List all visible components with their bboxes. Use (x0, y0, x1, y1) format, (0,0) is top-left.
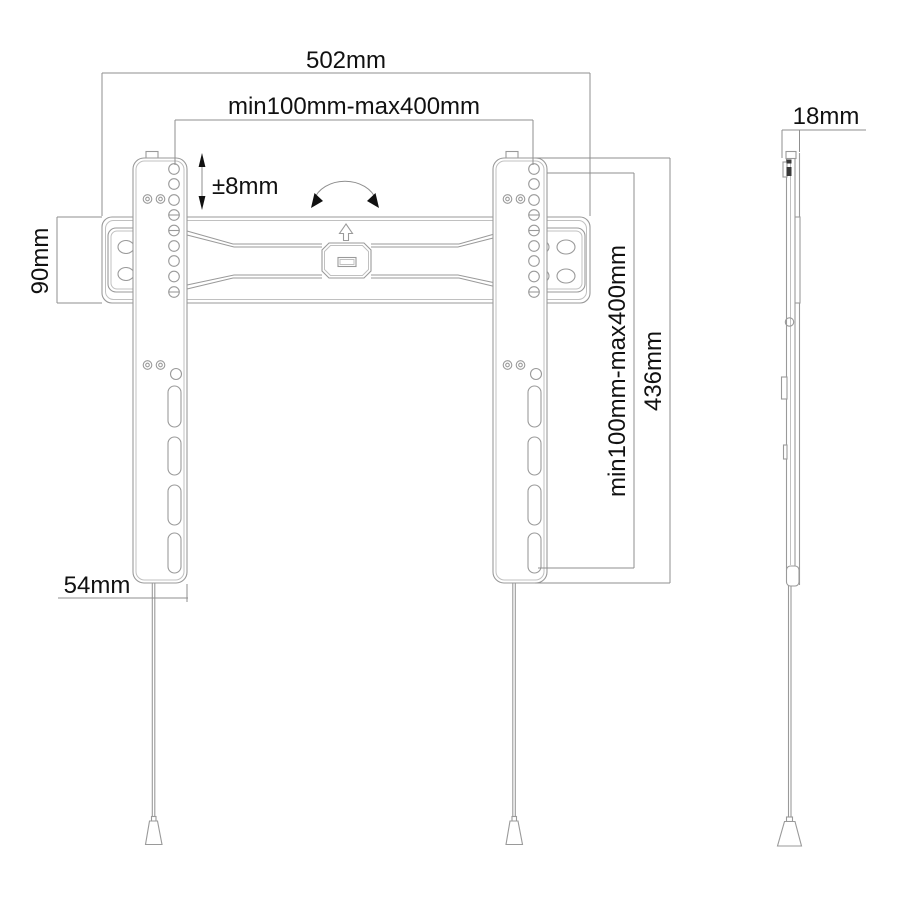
pull-cord (146, 583, 163, 845)
dimension-plate-height: 90mm (27, 217, 102, 303)
side-pull-cord (778, 586, 802, 846)
dim-vesa-width-label: min100mm-max400mm (228, 93, 480, 120)
dim-vesa-height-label: min100mm-max400mm (604, 245, 631, 497)
rotation-arc-icon (311, 181, 379, 208)
side-notch (782, 377, 788, 399)
pull-cord-right (506, 583, 523, 845)
side-foot (787, 566, 800, 586)
side-view (778, 152, 802, 847)
dim-level-adjust-label: ±8mm (212, 173, 279, 200)
side-notch-2 (784, 445, 788, 459)
technical-drawing-page: 502mm min100mm-max400mm ±8mm 90mm 54mm m… (0, 0, 900, 900)
wall-mount-drawing: 502mm min100mm-max400mm ±8mm 90mm 54mm m… (0, 0, 900, 900)
dimension-level-adjustment: ±8mm (199, 153, 279, 210)
dim-profile-depth-label: 18mm (793, 103, 860, 130)
dim-bracket-width-label: 54mm (64, 572, 131, 599)
center-slide-box (322, 243, 371, 278)
dim-plate-height-label: 90mm (27, 228, 54, 295)
dimension-profile-depth: 18mm (782, 103, 866, 158)
cord-weight (146, 821, 163, 845)
right-bracket (493, 152, 547, 584)
dim-bracket-height-label: 436mm (640, 331, 667, 411)
side-cord-weight (778, 822, 802, 847)
dim-total-width-label: 502mm (306, 47, 386, 74)
front-view (102, 152, 590, 845)
left-bracket (133, 152, 187, 584)
dimension-vesa-width: min100mm-max400mm (175, 93, 533, 165)
